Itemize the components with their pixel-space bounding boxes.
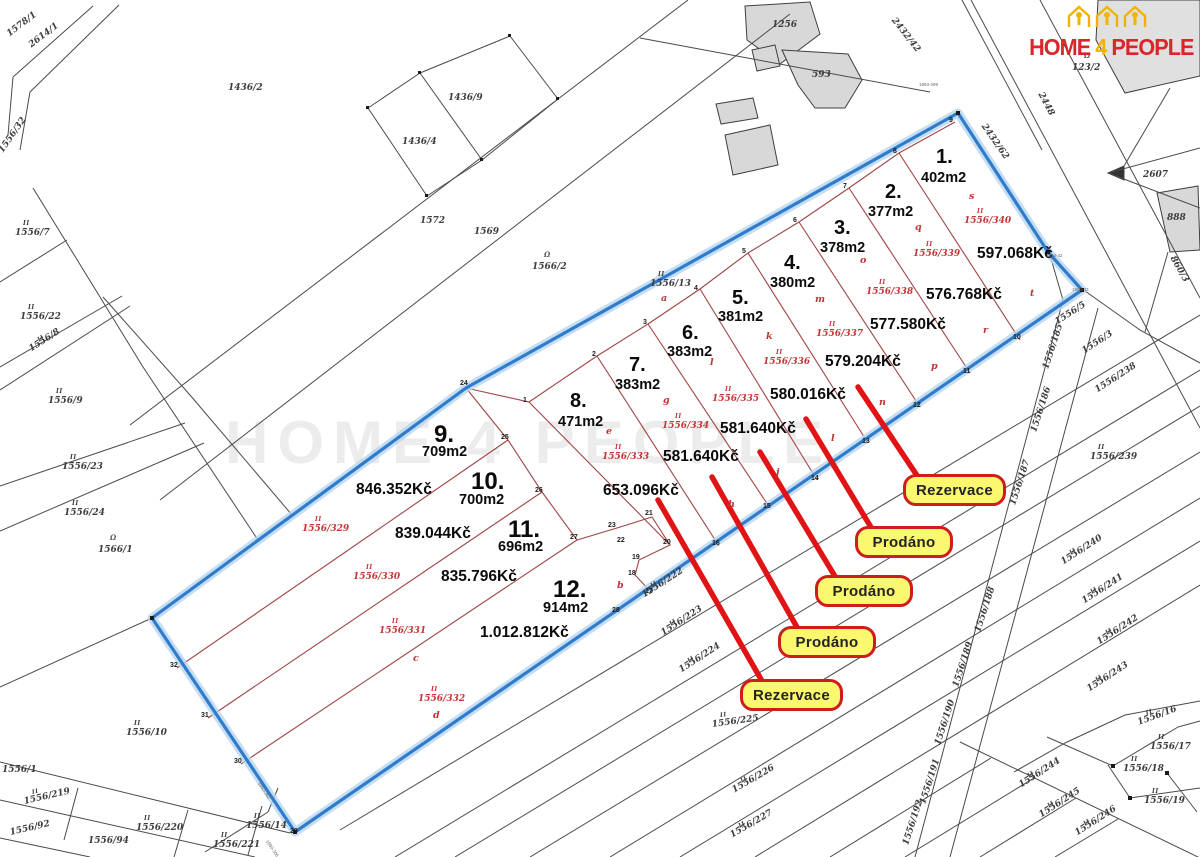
neighbor-parcel-label: 1569	[474, 227, 499, 237]
plot-parcel-number: 1556/330	[353, 572, 400, 582]
land-use-mark: II	[1158, 734, 1165, 741]
boundary-vertex-number: 21	[645, 510, 653, 517]
boundary-vertex-number: 20	[663, 539, 671, 546]
neighbor-parcel-label: 1572	[420, 216, 445, 226]
land-use-mark: II	[1098, 444, 1105, 451]
boundary-vertex-number: 12	[913, 402, 921, 409]
plot-number: 7.	[629, 354, 646, 377]
plot-price: 577.580Kč	[870, 316, 946, 334]
neighbor-parcel-label: 1556/185	[1041, 323, 1065, 371]
neighbor-parcel-label: 1556/14	[246, 821, 287, 831]
plot-price: 653.096Kč	[603, 482, 679, 500]
land-use-mark: II	[776, 349, 783, 356]
boundary-vertex-number: 31	[201, 712, 209, 719]
survey-mark-label: 1994-43	[1072, 287, 1089, 292]
plot-number: 5.	[732, 287, 749, 310]
plot-area: 471m2	[558, 414, 603, 430]
boundary-vertex-number: 7	[843, 183, 847, 190]
boundary-vertex-number: 6	[793, 217, 797, 224]
plot-price: 835.796Kč	[441, 568, 517, 586]
land-use-mark: II	[72, 500, 79, 507]
boundary-vertex-number: 25	[501, 434, 509, 441]
plot-area: 380m2	[770, 275, 815, 291]
neighbor-parcel-label: 1556/7	[15, 228, 50, 238]
boundary-vertex-number: 28	[612, 607, 620, 614]
land-use-mark: II	[31, 788, 39, 796]
neighbor-parcel-label: 593	[812, 70, 831, 80]
land-use-mark: II	[1152, 788, 1159, 795]
plot-area: 696m2	[498, 539, 543, 555]
plot-parcel-number: 1556/337	[816, 329, 863, 339]
plot-area: 402m2	[921, 170, 966, 186]
land-use-mark: II	[977, 208, 984, 215]
neighbor-parcel-label: 888	[1167, 213, 1186, 223]
neighbor-parcel-label: 1556/239	[1090, 452, 1137, 462]
parcel-letter: l	[710, 357, 714, 368]
land-use-mark: II	[720, 711, 728, 719]
logo-houses-icon	[1067, 5, 1151, 29]
land-use-mark: II	[28, 304, 35, 311]
plot-parcel-number: 1556/338	[866, 287, 913, 297]
plot-number: 2.	[885, 181, 902, 204]
status-badge: Prodáno	[778, 626, 876, 658]
logo-wordmark: HOME 4 PEOPLE	[1029, 34, 1189, 61]
boundary-vertex-number: 23	[608, 522, 616, 529]
plot-price: 839.044Kč	[395, 525, 471, 543]
land-use-mark: II	[725, 386, 732, 393]
neighbor-parcel-label: 1556/221	[213, 840, 260, 850]
neighbor-parcel-label: 1556/9	[48, 396, 83, 406]
neighbor-parcel-label: 1556/241	[1080, 572, 1125, 606]
neighbor-parcel-label: 1556/16	[1136, 704, 1178, 727]
boundary-vertex-number: 26	[535, 487, 543, 494]
neighbor-parcel-label: 1556/188	[973, 586, 997, 634]
neighbor-parcel-label: 1556/244	[1017, 756, 1062, 790]
boundary-vertex-number: 18	[628, 570, 636, 577]
neighbor-parcel-label: 1556/8	[27, 327, 61, 354]
plot-area: 383m2	[667, 344, 712, 360]
neighbor-parcel-label: 1556/23	[62, 462, 103, 472]
land-use-mark: II	[926, 241, 933, 248]
neighbor-parcel-label: 1556/224	[677, 641, 722, 675]
boundary-vertex-number: 3	[643, 319, 647, 326]
boundary-vertex-number: 10	[1013, 334, 1021, 341]
logo-word-4: 4	[1095, 34, 1106, 60]
neighbor-parcel-label: 1556/189	[951, 641, 975, 689]
neighbor-parcel-label: 1436/4	[402, 137, 437, 147]
plot-parcel-number: 1556/331	[379, 626, 426, 636]
parcel-letter: n	[879, 397, 886, 408]
parcel-letter: p	[931, 361, 938, 372]
plot-number: 3.	[834, 217, 851, 240]
neighbor-parcel-label: 1556/24	[64, 508, 105, 518]
parcel-letter: j	[776, 467, 779, 478]
neighbor-parcel-label: 1556/245	[1037, 786, 1082, 820]
survey-mark-label: 1990-306	[265, 839, 280, 857]
neighbor-parcel-label: 1556/240	[1059, 533, 1104, 567]
parcel-letter: o	[860, 255, 866, 266]
parcel-letter: t	[1030, 288, 1034, 299]
plot-price: 580.016Kč	[770, 386, 846, 404]
plot-parcel-number: 1556/333	[602, 452, 649, 462]
land-use-mark: II	[366, 564, 373, 571]
plot-price: 581.640Kč	[720, 420, 796, 438]
neighbor-parcel-label: 1556/220	[136, 823, 183, 833]
neighbor-parcel-label: 2614/1	[27, 21, 61, 50]
neighbor-parcel-label: 1556/187	[1008, 459, 1032, 507]
neighbor-parcel-label: 2432/42	[889, 16, 922, 54]
plot-parcel-number: 1556/334	[662, 421, 709, 431]
boundary-vertex-number: 9	[949, 117, 953, 124]
boundary-vertex-number: 30	[234, 758, 242, 765]
neighbor-parcel-label: 2448	[1036, 91, 1057, 118]
neighbor-parcel-label: 1556/192	[901, 799, 925, 847]
boundary-vertex-number: 2	[592, 351, 596, 358]
boundary-vertex-number: 19	[632, 554, 640, 561]
parcel-letter: k	[766, 331, 773, 342]
neighbor-parcel-label: 1556/1	[2, 765, 37, 775]
neighbor-parcel-label: 1556/226	[731, 763, 777, 795]
boundary-vertex-number: 13	[862, 438, 870, 445]
plot-parcel-number: 1556/332	[418, 694, 465, 704]
logo-word-people: PEOPLE	[1111, 34, 1193, 60]
survey-mark-label: 1992-382	[257, 781, 272, 800]
neighbor-parcel-label: 860/3	[1168, 255, 1191, 285]
neighbor-parcel-label: 2432/62	[979, 122, 1011, 161]
land-use-mark: II	[675, 413, 682, 420]
boundary-vertex-number: 29	[290, 828, 298, 835]
boundary-vertex-number: 14	[811, 475, 819, 482]
plot-parcel-number: 1556/340	[964, 216, 1011, 226]
neighbor-parcel-label: 1556/219	[23, 787, 71, 807]
plot-price: 579.204Kč	[825, 353, 901, 371]
parcel-letter: q	[915, 222, 922, 233]
land-use-mark: II	[134, 720, 141, 727]
plot-price: 597.068Kč	[977, 245, 1053, 263]
land-use-mark: II	[879, 279, 886, 286]
plot-area: 700m2	[459, 492, 504, 508]
plot-area: 378m2	[820, 240, 865, 256]
boundary-vertex-number: 8	[893, 148, 897, 155]
neighbor-parcel-label: 1556/243	[1085, 660, 1130, 694]
boundary-vertex-number: 5	[742, 248, 746, 255]
survey-mark-label: 1993-299	[919, 82, 938, 87]
cadastral-map: HOME 4 PEOPLE	[0, 0, 1200, 857]
land-use-mark: II	[658, 271, 665, 278]
parcel-letter: g	[663, 395, 670, 406]
labels-layer: 1578/12614/11556/321436/21436/91436/4157…	[0, 0, 1200, 857]
boundary-vertex-number: 1	[523, 397, 527, 404]
plot-price: 576.768Kč	[926, 286, 1002, 304]
plot-price: 581.640Kč	[663, 448, 739, 466]
neighbor-parcel-label: 1556/10	[126, 728, 167, 738]
neighbor-parcel-label: 1556/3	[1080, 329, 1114, 356]
neighbor-parcel-label: 1256	[772, 20, 797, 30]
status-badge: Rezervace	[740, 679, 843, 711]
neighbor-parcel-label: 1566/1	[98, 545, 133, 555]
boundary-vertex-number: 27	[570, 534, 578, 541]
land-use-mark: II	[23, 220, 30, 227]
land-use-symbol: Ω	[110, 533, 116, 542]
neighbor-parcel-label: 1556/191	[918, 758, 942, 806]
plot-price: 1.012.812Kč	[480, 624, 569, 642]
plot-parcel-number: 1556/339	[913, 249, 960, 259]
boundary-vertex-number: 32	[170, 662, 178, 669]
neighbor-parcel-label: 1556/190	[933, 699, 957, 747]
boundary-vertex-number: 4	[694, 285, 698, 292]
home4people-logo: HOME 4 PEOPLE	[1024, 5, 1194, 61]
land-use-mark: II	[70, 454, 77, 461]
plot-number: 8.	[570, 390, 587, 413]
plot-parcel-number: 1556/336	[763, 357, 810, 367]
plot-price: 846.352Kč	[356, 481, 432, 499]
boundary-vertex-number: 24	[460, 380, 468, 387]
parcel-letter: e	[606, 426, 612, 437]
neighbor-parcel-label: 1556/222	[640, 566, 685, 600]
neighbor-parcel-label: 1578/1	[5, 10, 39, 39]
neighbor-parcel-label: 1556/92	[9, 819, 51, 838]
neighbor-parcel-label: 1556/186	[1029, 386, 1053, 434]
land-use-symbol: Ω	[544, 250, 550, 259]
status-badge: Rezervace	[903, 474, 1006, 506]
land-use-mark: II	[431, 686, 438, 693]
neighbor-parcel-label: 1556/242	[1095, 613, 1140, 647]
plot-number: 1.	[936, 146, 953, 169]
status-badge: Prodáno	[815, 575, 913, 607]
parcel-letter: a	[661, 293, 667, 304]
neighbor-parcel-label: 1556/18	[1123, 764, 1164, 774]
land-use-mark: II	[615, 444, 622, 451]
status-badge: Prodáno	[855, 526, 953, 558]
neighbor-parcel-label: 1556/94	[88, 836, 129, 846]
parcel-letter: m	[815, 294, 825, 305]
land-use-mark: II	[392, 618, 399, 625]
neighbor-parcel-label: 1556/246	[1073, 804, 1118, 838]
plot-area: 383m2	[615, 377, 660, 393]
plot-number: 6.	[682, 322, 699, 345]
neighbor-parcel-label: 2607	[1143, 170, 1168, 180]
parcel-letter: r	[983, 325, 988, 336]
parcel-letter: l	[831, 433, 835, 444]
land-use-mark: II	[1131, 756, 1138, 763]
plot-number: 4.	[784, 252, 801, 275]
logo-word-home: HOME	[1029, 34, 1090, 60]
plot-area: 377m2	[868, 204, 913, 220]
parcel-letter: s	[969, 191, 974, 202]
land-use-mark: II	[144, 815, 151, 822]
boundary-vertex-number: 16	[712, 540, 720, 547]
plot-area: 709m2	[422, 444, 467, 460]
neighbor-parcel-label: 123/2	[1072, 63, 1100, 73]
plot-parcel-number: 1556/329	[302, 524, 349, 534]
neighbor-parcel-label: 1556/225	[711, 713, 759, 729]
neighbor-parcel-label: 1556/238	[1093, 361, 1138, 395]
boundary-vertex-number: 22	[617, 537, 625, 544]
plot-parcel-number: 1556/335	[712, 394, 759, 404]
neighbor-parcel-label: 1556/13	[650, 279, 691, 289]
neighbor-parcel-label: 1556/32	[0, 116, 29, 155]
boundary-vertex-number: 11	[963, 368, 970, 375]
neighbor-parcel-label: 1556/22	[20, 312, 61, 322]
boundary-vertex-number: 15	[763, 503, 771, 510]
neighbor-parcel-label: 1556/19	[1144, 796, 1185, 806]
neighbor-parcel-label: 1556/227	[729, 808, 775, 840]
plot-area: 914m2	[543, 600, 588, 616]
neighbor-parcel-label: 1566/2	[532, 262, 567, 272]
land-use-mark: II	[254, 813, 261, 820]
plot-area: 381m2	[718, 309, 763, 325]
parcel-letter: d	[433, 710, 440, 721]
land-use-mark: II	[56, 388, 63, 395]
parcel-letter: h	[728, 499, 735, 510]
land-use-mark: II	[315, 516, 322, 523]
land-use-mark: II	[221, 832, 228, 839]
parcel-letter: b	[617, 580, 624, 591]
neighbor-parcel-label: 1436/2	[228, 83, 263, 93]
land-use-mark: II	[829, 321, 836, 328]
survey-mark-label: 1994-42	[1046, 253, 1063, 258]
neighbor-parcel-label: 1436/9	[448, 93, 483, 103]
neighbor-parcel-label: 1556/17	[1150, 742, 1191, 752]
neighbor-parcel-label: 1556/223	[659, 604, 704, 638]
parcel-letter: c	[413, 653, 419, 664]
boundary-vertex-number: 17	[645, 588, 653, 595]
